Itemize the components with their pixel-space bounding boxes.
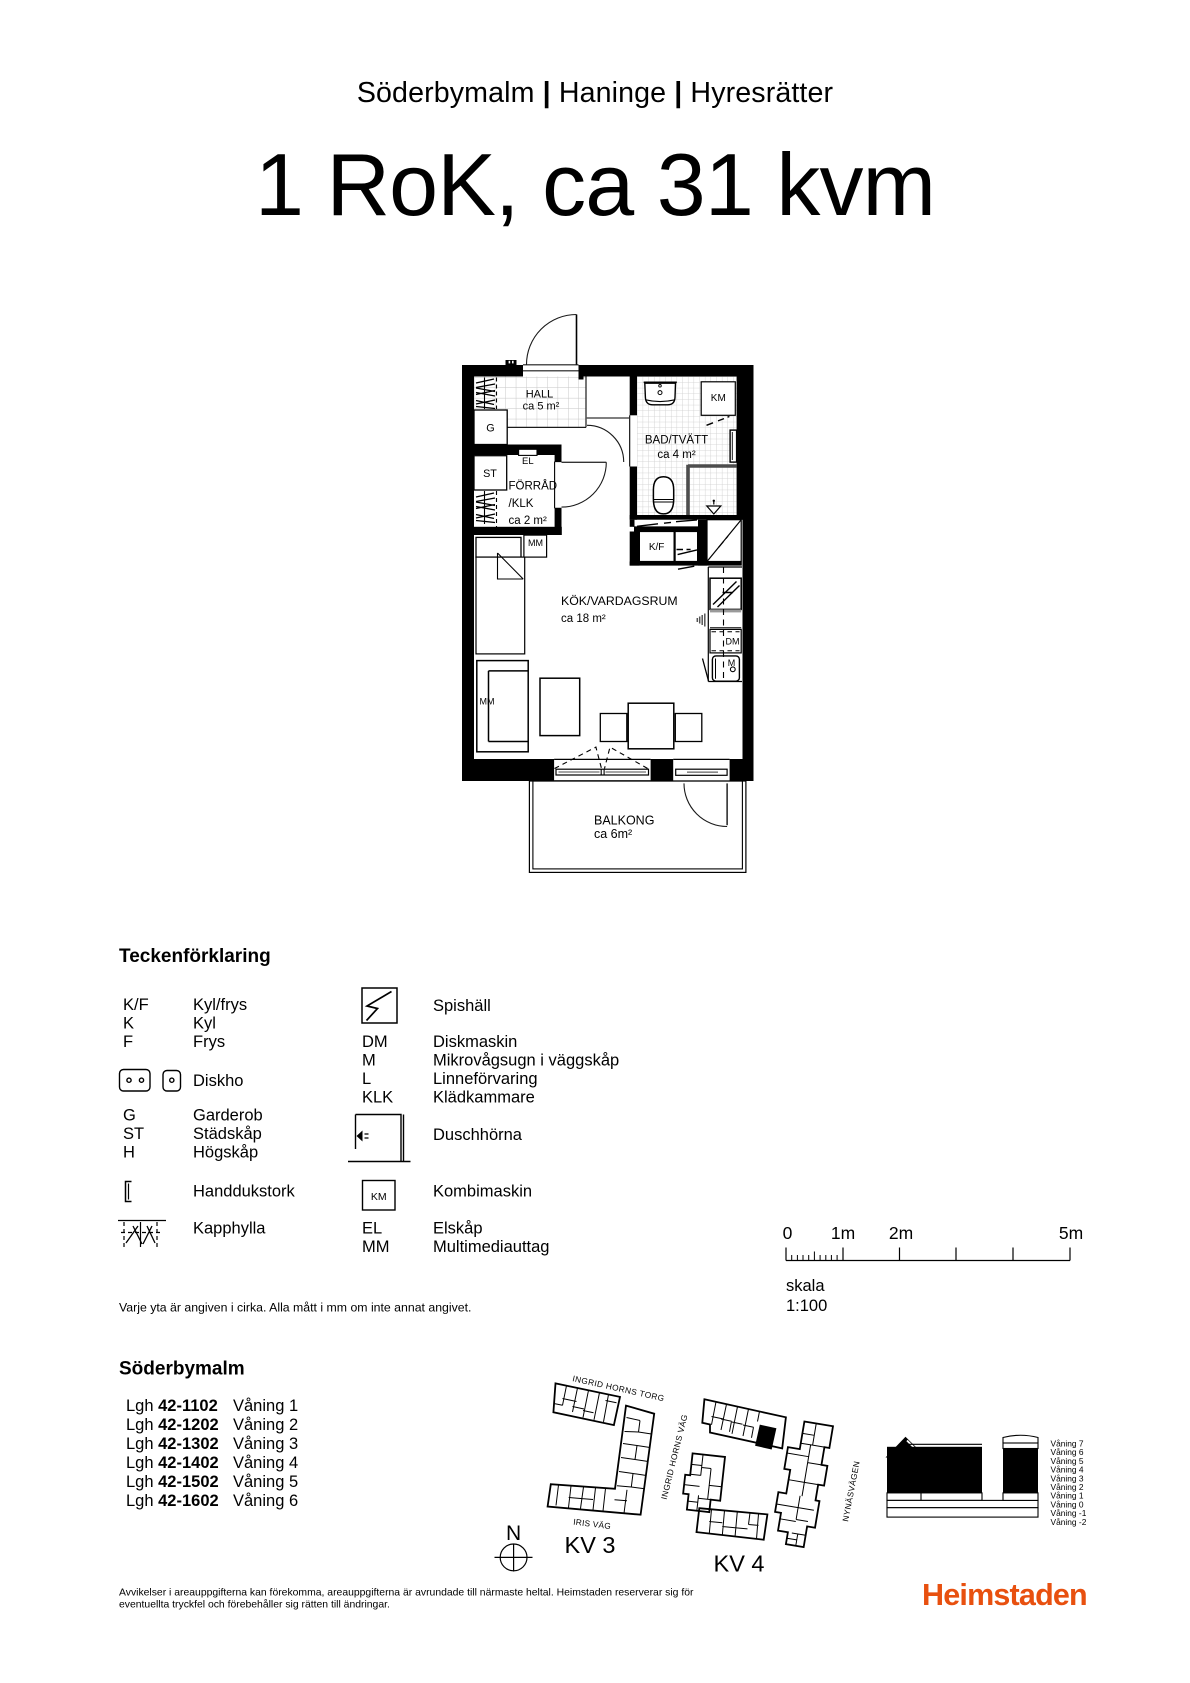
svg-text:Heimstaden: Heimstaden (922, 1578, 1087, 1612)
svg-text:F: F (123, 1033, 133, 1051)
svg-text:KLK: KLK (362, 1089, 393, 1107)
svg-text:Söderbymalm: Söderbymalm (119, 1359, 245, 1380)
svg-text:1:100: 1:100 (786, 1297, 827, 1315)
svg-text:G: G (486, 423, 494, 435)
svg-text:Klädkammare: Klädkammare (433, 1089, 535, 1107)
svg-text:ca 2 m²: ca 2 m² (509, 515, 548, 527)
svg-text:H: H (123, 1144, 135, 1162)
svg-text:Diskho: Diskho (193, 1072, 243, 1090)
svg-text:ST: ST (483, 468, 497, 480)
svg-text:K: K (123, 1015, 134, 1033)
svg-text:Multimediauttag: Multimediauttag (433, 1238, 549, 1256)
svg-text:DM: DM (726, 637, 740, 647)
svg-text:Lgh 42-1102: Lgh 42-1102 (126, 1397, 218, 1415)
svg-text:G: G (123, 1107, 136, 1125)
svg-text:FÖRRÅD: FÖRRÅD (509, 480, 558, 493)
svg-text:INGRID HORNS TORG: INGRID HORNS TORG (572, 1373, 666, 1403)
svg-text:Lgh 42-1202: Lgh 42-1202 (126, 1416, 219, 1434)
svg-text:Garderob: Garderob (193, 1107, 263, 1125)
svg-text:Mikrovågsugn i väggskåp: Mikrovågsugn i väggskåp (433, 1052, 619, 1070)
svg-text:Högskåp: Högskåp (193, 1144, 258, 1162)
svg-text:ca 4 m²: ca 4 m² (657, 449, 696, 461)
svg-text:K/F: K/F (649, 542, 665, 553)
svg-text:DM: DM (362, 1033, 388, 1051)
svg-text:Elskåp: Elskåp (433, 1220, 483, 1238)
svg-text:/KLK: /KLK (509, 498, 534, 510)
svg-text:KÖK/VARDAGSRUM: KÖK/VARDAGSRUM (561, 594, 678, 608)
svg-text:N: N (506, 1522, 521, 1545)
svg-text:IRIS VÄG: IRIS VÄG (573, 1517, 612, 1532)
svg-text:Kyl/frys: Kyl/frys (193, 996, 247, 1014)
svg-text:L: L (362, 1070, 371, 1088)
svg-text:Spishäll: Spishäll (433, 997, 491, 1015)
svg-text:Avvikelser i areauppgifterna k: Avvikelser i areauppgifterna kan förekom… (119, 1588, 694, 1599)
svg-text:skala: skala (786, 1277, 825, 1295)
svg-text:Kapphylla: Kapphylla (193, 1220, 266, 1238)
svg-text:MM: MM (362, 1238, 390, 1256)
svg-text:M: M (728, 658, 736, 668)
svg-text:Våning 2: Våning 2 (233, 1416, 298, 1434)
svg-text:Frys: Frys (193, 1033, 225, 1051)
svg-text:Våning 4: Våning 4 (233, 1454, 298, 1472)
svg-text:Linneförvaring: Linneförvaring (433, 1070, 538, 1088)
svg-text:5m: 5m (1059, 1223, 1083, 1243)
svg-text:BAD/TVÄTT: BAD/TVÄTT (645, 435, 708, 447)
svg-text:Våning 5: Våning 5 (233, 1473, 298, 1491)
svg-text:Duschhörna: Duschhörna (433, 1126, 523, 1144)
svg-text:KM: KM (711, 393, 726, 404)
svg-text:KV 4: KV 4 (714, 1551, 765, 1577)
svg-text:Lgh 42-1302: Lgh 42-1302 (126, 1435, 219, 1453)
svg-text:Våning -2: Våning -2 (1051, 1517, 1087, 1527)
svg-text:KM: KM (371, 1191, 387, 1203)
svg-text:BALKONG: BALKONG (594, 814, 654, 828)
svg-text:HALL: HALL (526, 389, 554, 401)
svg-text:EL: EL (522, 456, 534, 467)
svg-text:Kyl: Kyl (193, 1015, 216, 1033)
svg-text:MM: MM (480, 697, 495, 707)
svg-text:Våning 6: Våning 6 (233, 1492, 298, 1510)
svg-text:Våning 1: Våning 1 (233, 1397, 298, 1415)
svg-text:Lgh 42-1602: Lgh 42-1602 (126, 1492, 219, 1510)
svg-text:INGRID HORNS VÄG: INGRID HORNS VÄG (659, 1413, 690, 1500)
svg-text:Handdukstork: Handdukstork (193, 1183, 296, 1201)
svg-text:0: 0 (783, 1223, 793, 1243)
svg-text:ca 6m²: ca 6m² (594, 827, 632, 841)
svg-text:K/F: K/F (123, 996, 149, 1014)
svg-text:Diskmaskin: Diskmaskin (433, 1033, 517, 1051)
svg-text:MM: MM (528, 538, 543, 548)
svg-text:Lgh 42-1402: Lgh 42-1402 (126, 1454, 219, 1472)
svg-text:Våning 3: Våning 3 (233, 1435, 298, 1453)
svg-text:Söderbymalm | Haninge | Hyresr: Söderbymalm | Haninge | Hyresrätter (357, 77, 834, 109)
svg-text:1 RoK, ca 31 kvm: 1 RoK, ca 31 kvm (255, 135, 935, 234)
svg-text:Lgh 42-1502: Lgh 42-1502 (126, 1473, 219, 1491)
svg-text:ca 18 m²: ca 18 m² (561, 613, 606, 625)
svg-text:eventuellta tryckfel och föreb: eventuellta tryckfel och förebehåller si… (119, 1599, 390, 1611)
svg-text:KV 3: KV 3 (565, 1532, 616, 1558)
svg-text:Kombimaskin: Kombimaskin (433, 1183, 532, 1201)
svg-text:Varje yta är angiven i cirka.: Varje yta är angiven i cirka. Alla mått … (119, 1301, 471, 1315)
svg-text:2m: 2m (889, 1223, 913, 1243)
svg-text:1m: 1m (831, 1223, 855, 1243)
svg-text:EL: EL (362, 1220, 382, 1238)
svg-text:ST: ST (123, 1125, 144, 1143)
svg-text:M: M (362, 1052, 376, 1070)
svg-text:NYNÄSVÄGEN: NYNÄSVÄGEN (840, 1460, 862, 1522)
svg-text:Städskåp: Städskåp (193, 1125, 262, 1143)
svg-text:Teckenförklaring: Teckenförklaring (119, 946, 271, 967)
svg-text:ca 5 m²: ca 5 m² (523, 401, 560, 413)
